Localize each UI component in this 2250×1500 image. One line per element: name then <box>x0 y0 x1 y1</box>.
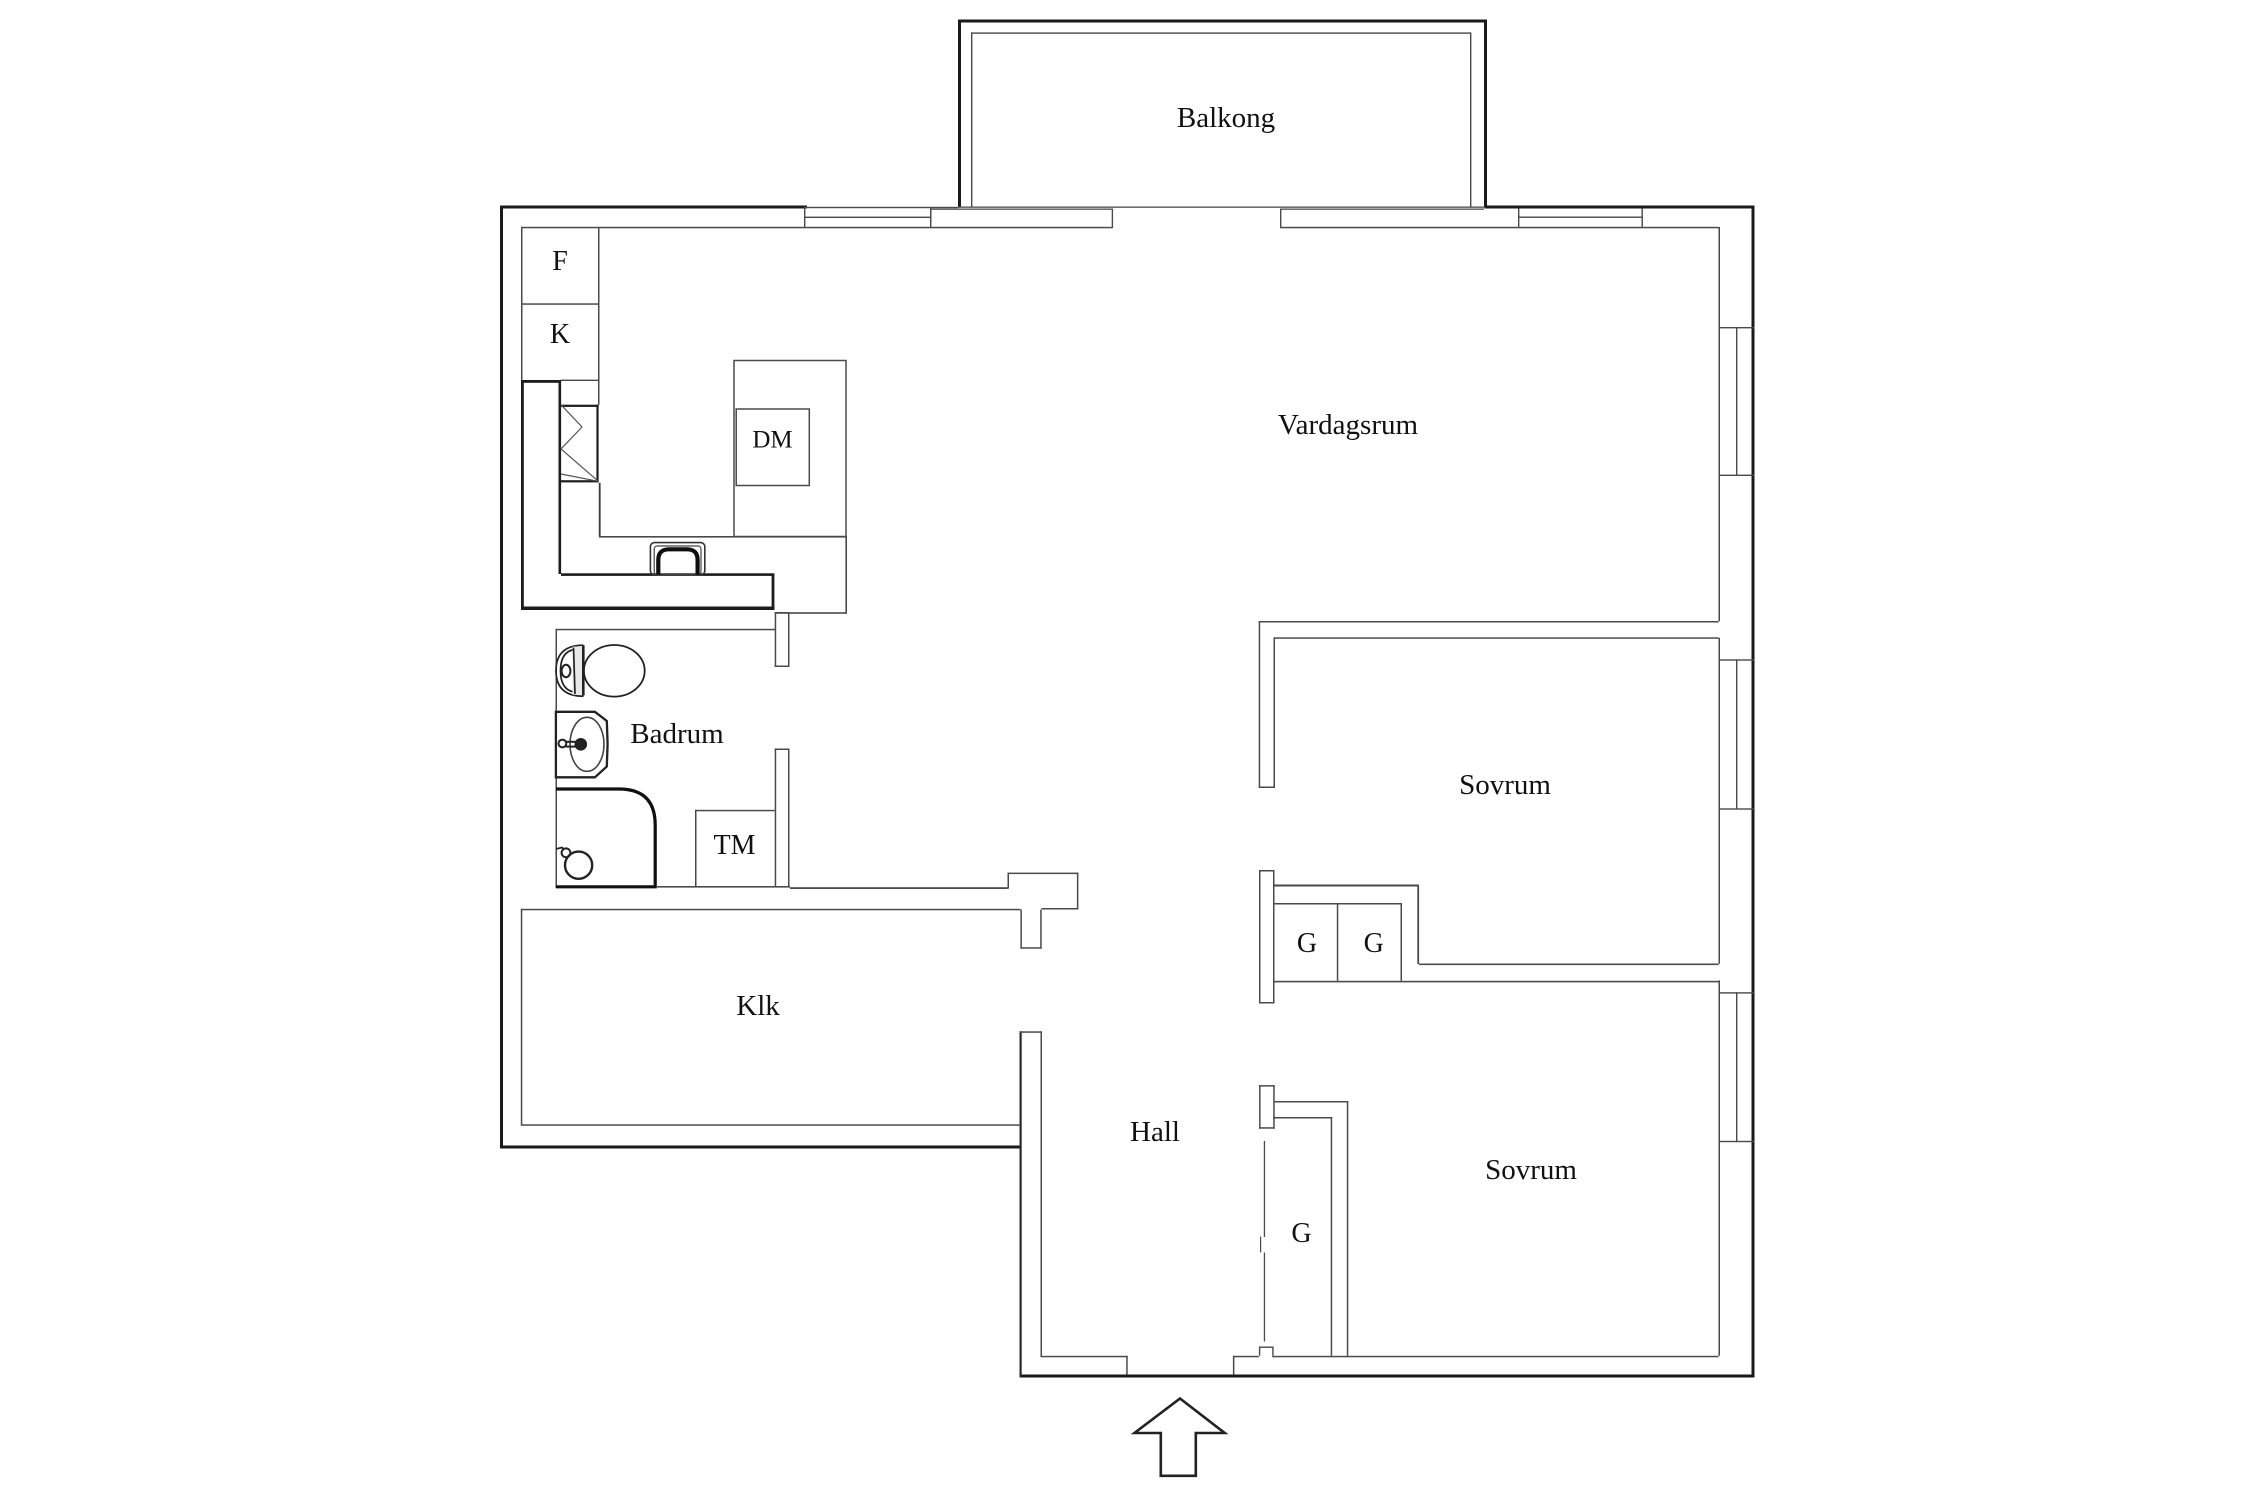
svg-text:Balkong: Balkong <box>1177 102 1275 134</box>
svg-text:K: K <box>550 319 570 350</box>
svg-text:Badrum: Badrum <box>630 718 724 750</box>
svg-text:Vardagsrum: Vardagsrum <box>1278 409 1419 441</box>
svg-text:Hall: Hall <box>1130 1116 1180 1148</box>
svg-text:DM: DM <box>752 427 792 454</box>
svg-text:G: G <box>1364 928 1384 959</box>
svg-text:G: G <box>1297 928 1317 959</box>
svg-text:TM: TM <box>714 830 756 861</box>
svg-text:F: F <box>552 246 568 277</box>
svg-text:Sovrum: Sovrum <box>1459 769 1551 801</box>
svg-text:G: G <box>1291 1218 1311 1249</box>
svg-text:Sovrum: Sovrum <box>1485 1154 1577 1186</box>
svg-text:Klk: Klk <box>736 990 780 1022</box>
